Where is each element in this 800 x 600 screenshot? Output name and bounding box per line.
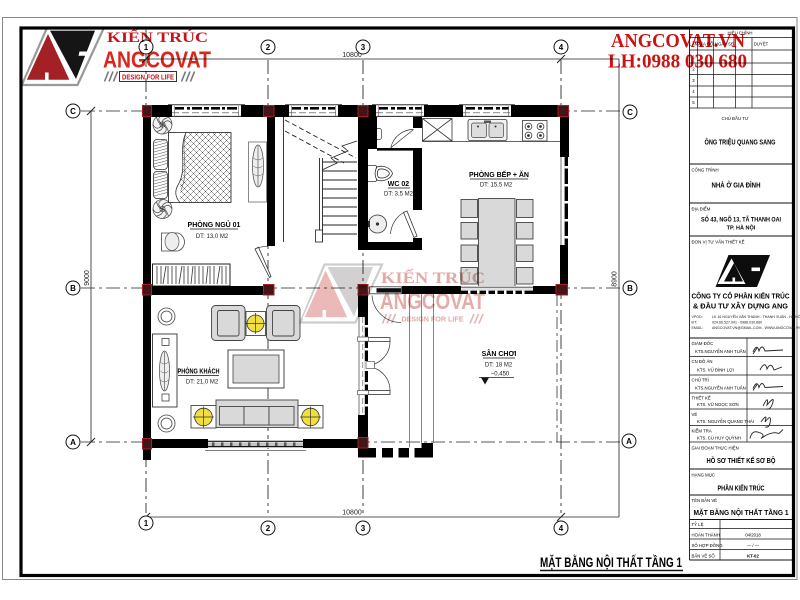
svg-text:EMAIL:: EMAIL: bbox=[692, 326, 704, 330]
svg-text:DT: 21,0 M2: DT: 21,0 M2 bbox=[186, 380, 219, 386]
svg-text:TP. HÀ NỘI: TP. HÀ NỘI bbox=[727, 224, 756, 232]
svg-text:— / —: — / — bbox=[747, 543, 760, 548]
svg-text:CN ĐỒ ÁN: CN ĐỒ ÁN bbox=[692, 359, 713, 364]
svg-text:A: A bbox=[626, 437, 632, 446]
svg-text:PHÒNG NGỦ 01: PHÒNG NGỦ 01 bbox=[188, 220, 241, 229]
svg-text:VPGD:: VPGD: bbox=[692, 315, 703, 319]
svg-text:CHỦ TRÌ: CHỦ TRÌ bbox=[692, 378, 709, 383]
svg-text:10800: 10800 bbox=[342, 510, 362, 517]
svg-text:CÔNG TRÌNH: CÔNG TRÌNH bbox=[692, 168, 719, 173]
svg-text:ANGCOVAT: ANGCOVAT bbox=[380, 288, 486, 314]
svg-text:KTS.NGUYỄN ANH TUẤN: KTS.NGUYỄN ANH TUẤN bbox=[695, 386, 746, 391]
svg-text:DT: 15,5 M2: DT: 15,5 M2 bbox=[480, 183, 513, 189]
svg-text:DT: 13,0 M2: DT: 13,0 M2 bbox=[196, 234, 229, 240]
svg-text:CHỦ ĐẦU TƯ: CHỦ ĐẦU TƯ bbox=[722, 116, 749, 121]
svg-text:−0,450: −0,450 bbox=[491, 372, 510, 378]
svg-text:LK 16 NGUYỄN VĂN THANH - THANH: LK 16 NGUYỄN VĂN THANH - THANH XUÂN - HÀ… bbox=[712, 314, 800, 319]
svg-text:ANGCOVAT.VN@GMAIL.COM - WWW.AN: ANGCOVAT.VN@GMAIL.COM - WWW.ANGCOVAT.VN(… bbox=[712, 326, 800, 330]
svg-text:BẢN VẼ SỐ: BẢN VẼ SỐ bbox=[692, 554, 716, 559]
svg-text:TÊN BẢN VẼ: TÊN BẢN VẼ bbox=[692, 498, 718, 503]
svg-text:CÔNG TY CỔ PHẦN KIẾN TRÚC: CÔNG TY CỔ PHẦN KIẾN TRÚC bbox=[692, 291, 790, 301]
svg-text:SỐ 43, NGÕ 13, TÃ THANH OAI: SỐ 43, NGÕ 13, TÃ THANH OAI bbox=[701, 217, 781, 224]
svg-text:9000: 9000 bbox=[84, 270, 91, 286]
svg-text:KTS. NGUYỄN QUANG THÁI: KTS. NGUYỄN QUANG THÁI bbox=[697, 419, 754, 424]
svg-text:ANGCOVAT: ANGCOVAT bbox=[103, 47, 211, 73]
svg-text:DESIGN FOR LIFE: DESIGN FOR LIFE bbox=[122, 75, 174, 82]
svg-text:2: 2 bbox=[266, 43, 271, 52]
svg-text:GIÁM ĐỐC: GIÁM ĐỐC bbox=[692, 341, 714, 346]
svg-text:4: 4 bbox=[559, 43, 564, 52]
svg-text:04/2018: 04/2018 bbox=[745, 533, 761, 538]
svg-text:DT: 3,5 M2: DT: 3,5 M2 bbox=[384, 192, 414, 198]
svg-text:PHÒNG KHÁCH: PHÒNG KHÁCH bbox=[178, 367, 220, 376]
svg-text:KIỂM TRA: KIỂM TRA bbox=[692, 429, 712, 434]
svg-text:GIAI ĐOẠN THỰC HIỆN: GIAI ĐOẠN THỰC HIỆN bbox=[692, 446, 739, 451]
svg-text:1: 1 bbox=[144, 519, 149, 528]
svg-text:B: B bbox=[627, 284, 633, 293]
svg-text:KIẾN TRÚC: KIẾN TRÚC bbox=[381, 269, 485, 287]
svg-text:MẶT BẰNG NỘI THẤT TẦNG 1: MẶT BẰNG NỘI THẤT TẦNG 1 bbox=[540, 555, 682, 570]
svg-text:KTS. VŨ NGỌC SƠN: KTS. VŨ NGỌC SƠN bbox=[697, 402, 739, 407]
svg-text:4: 4 bbox=[559, 524, 564, 533]
svg-text:B: B bbox=[70, 284, 76, 293]
svg-text:SỐ HỢP ĐỒNG: SỐ HỢP ĐỒNG bbox=[692, 543, 724, 548]
svg-text:HẠNG MỤC: HẠNG MỤC bbox=[692, 473, 715, 478]
svg-text:C: C bbox=[627, 108, 633, 117]
svg-text:WC 02: WC 02 bbox=[388, 181, 410, 188]
svg-text:DESIGN FOR LIFE: DESIGN FOR LIFE bbox=[402, 315, 464, 324]
svg-text:DT: 18 M2: DT: 18 M2 bbox=[485, 363, 513, 369]
svg-text:3: 3 bbox=[361, 43, 366, 52]
svg-text:C: C bbox=[70, 107, 76, 116]
svg-text:NHÀ Ở GIA ĐÌNH: NHÀ Ở GIA ĐÌNH bbox=[712, 181, 761, 190]
svg-text:ĐƠN VỊ TƯ VẤN THIẾT KẾ: ĐƠN VỊ TƯ VẤN THIẾT KẾ bbox=[692, 240, 745, 245]
svg-text:ANGCOVAT.VN: ANGCOVAT.VN bbox=[611, 30, 746, 52]
svg-text:ĐT:: ĐT: bbox=[692, 321, 698, 325]
svg-text:KTS. VŨ ĐÌNH LỢI: KTS. VŨ ĐÌNH LỢI bbox=[697, 368, 734, 373]
svg-text:DUYỆT: DUYỆT bbox=[754, 42, 769, 47]
svg-text:KT-02: KT-02 bbox=[747, 554, 759, 559]
svg-text:ÔNG TRIỆU QUANG SANG: ÔNG TRIỆU QUANG SANG bbox=[705, 138, 776, 147]
svg-text:8900: 8900 bbox=[612, 271, 619, 287]
svg-text:HOÀN THÀNH: HOÀN THÀNH bbox=[692, 533, 720, 538]
svg-text:VẼ: VẼ bbox=[692, 412, 698, 417]
svg-text:024.66.527.041 - 0988.030.680: 024.66.527.041 - 0988.030.680 bbox=[712, 321, 762, 325]
svg-text:2: 2 bbox=[266, 524, 271, 533]
svg-text:TỶ LỆ: TỶ LỆ bbox=[692, 522, 704, 527]
svg-text:LH:0988 030 680: LH:0988 030 680 bbox=[608, 51, 747, 73]
svg-text:KIẾN TRÚC: KIẾN TRÚC bbox=[107, 29, 208, 46]
svg-text:KTS.NGUYỄN ANH TUẤN: KTS.NGUYỄN ANH TUẤN bbox=[695, 349, 746, 354]
svg-text:ĐỊA ĐIỂM: ĐỊA ĐIỂM bbox=[692, 207, 711, 212]
svg-text:SÂN CHƠI: SÂN CHƠI bbox=[482, 349, 517, 358]
svg-text:THIẾT KẾ: THIẾT KẾ bbox=[692, 396, 711, 401]
svg-text:3: 3 bbox=[361, 524, 366, 533]
svg-text:& ĐẦU TƯ XÂY DỰNG ANG: & ĐẦU TƯ XÂY DỰNG ANG bbox=[693, 301, 788, 311]
svg-text:A: A bbox=[70, 438, 76, 447]
svg-text:KTS. CÙ HUY QUỲNH: KTS. CÙ HUY QUỲNH bbox=[697, 436, 741, 441]
